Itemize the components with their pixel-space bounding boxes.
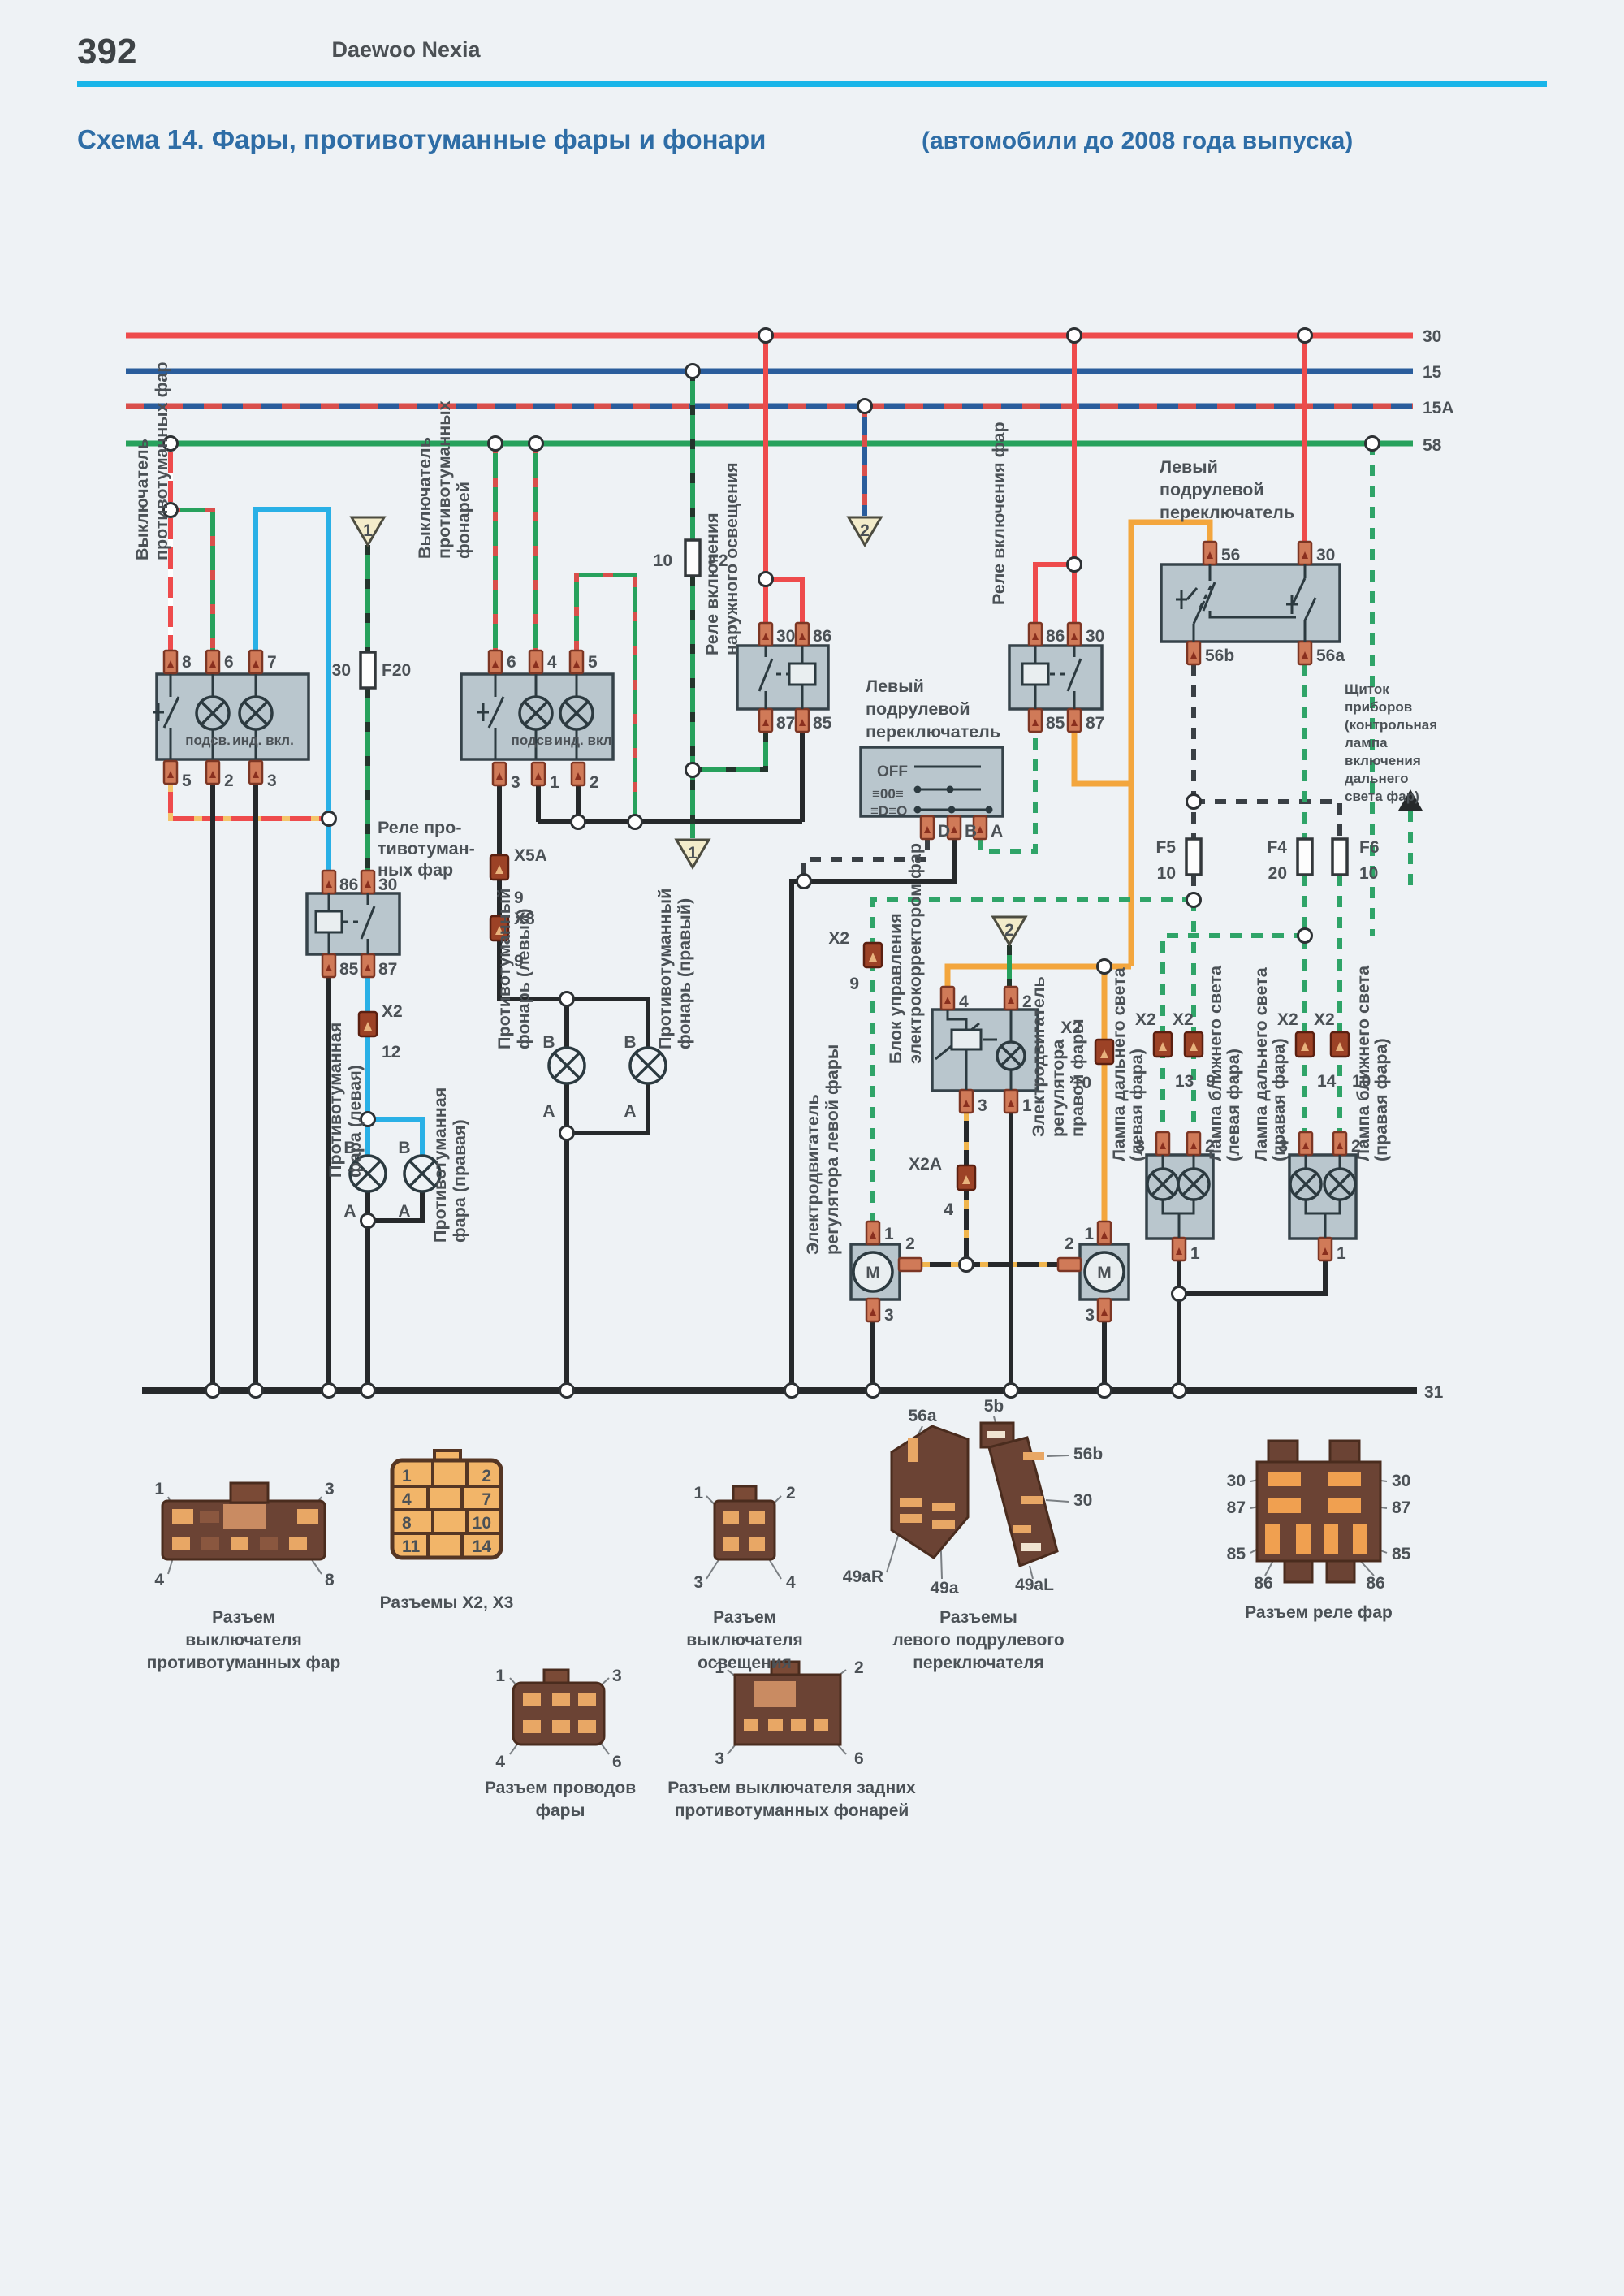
diagram-label: X2	[1135, 1010, 1156, 1029]
lamp-icon-x	[635, 1053, 660, 1078]
diagram-label: 6	[224, 653, 234, 672]
diagram-label: 87	[776, 714, 795, 733]
connector-headlamp-wires	[513, 1670, 604, 1745]
diagram-label: 1	[693, 1484, 703, 1503]
wire	[368, 1191, 422, 1221]
diagram-label: 2	[854, 1658, 864, 1677]
diagram-label: 30	[1392, 1472, 1410, 1490]
wire	[1179, 1260, 1325, 1294]
junction-dot	[249, 1384, 263, 1398]
ref-triangle-1: 1	[363, 521, 373, 540]
diagram-label: 4	[959, 992, 969, 1011]
diagram-label: 30	[1073, 1491, 1092, 1510]
right-leveling-motor-name: Электродвигатель	[1029, 976, 1048, 1137]
diagram-label: 49aL	[1015, 1576, 1054, 1594]
diagram-label: A	[343, 1202, 356, 1221]
diagram-label: 86	[813, 627, 831, 646]
high-beam-right-name: Лампа дальнего света	[1251, 966, 1271, 1161]
junction-dot	[1173, 1287, 1186, 1301]
connector-caption: Разъем	[212, 1608, 275, 1627]
diagram-label: 1	[884, 1225, 894, 1243]
fuse-f2-rating: 10	[654, 551, 672, 570]
diagram-label: 13	[1175, 1072, 1194, 1091]
bus-30-label: 30	[1423, 327, 1441, 346]
rear-fog-right-name: Противотуманный	[655, 889, 675, 1049]
diagram-label: B	[542, 1033, 555, 1052]
junction-dot	[686, 763, 700, 777]
connector-caption: фары	[536, 1801, 585, 1820]
diagram-label: 2	[1205, 1137, 1215, 1156]
dimmer-switch-name: Левый	[1160, 457, 1218, 477]
schema-title-note: (автомобили до 2008 года выпуска)	[922, 128, 1353, 154]
diagram-label: 3	[884, 1306, 894, 1325]
rear-fog-right-name: фонарь (правый)	[675, 898, 694, 1049]
diagram-label: 86	[339, 876, 358, 894]
diagram-label: 3	[978, 1096, 987, 1115]
wire-stripe	[693, 732, 766, 770]
diagram-label: 56	[1221, 546, 1240, 564]
junction-dot	[560, 992, 574, 1006]
diagram-label: 3	[1085, 1306, 1095, 1325]
cluster-note: света фар)	[1345, 789, 1419, 804]
wire	[171, 510, 213, 651]
diagram-label: 3	[1278, 1137, 1288, 1156]
junction-dot	[1068, 558, 1082, 572]
diagram-label: 49aR	[843, 1567, 883, 1586]
fuse-icon	[361, 652, 375, 688]
diagram-label: 1	[154, 1480, 164, 1498]
junction-dot	[797, 875, 811, 889]
front-fog-left-name: Противотуманная	[326, 1023, 345, 1178]
diagram-label: 3	[693, 1573, 703, 1592]
diagram-label: 86	[1254, 1574, 1272, 1593]
motor-m: M	[1097, 1264, 1112, 1282]
diagram-label: 2	[905, 1234, 915, 1253]
wire-stripe	[171, 784, 329, 819]
diagram-label: 56a	[1316, 646, 1345, 665]
rear-fog-switch-name: противотуманных	[434, 400, 454, 559]
wire	[693, 732, 766, 770]
diagram-label: 5b	[984, 1397, 1004, 1416]
cluster-note: включения	[1345, 753, 1421, 768]
ext-light-relay-name: Реле включения	[702, 512, 722, 655]
fuse-icon	[1186, 839, 1201, 875]
diagram-label: 5	[182, 772, 192, 790]
diagram-label: 3	[267, 772, 277, 790]
diagram-label: X2	[828, 929, 849, 948]
dimmer-switch-name: переключатель	[1160, 503, 1294, 522]
diagram-label: A	[542, 1102, 555, 1121]
junction-dot	[1068, 329, 1082, 343]
page-number: 392	[77, 32, 136, 71]
diagram-label: 8	[182, 653, 192, 672]
junction-dot	[489, 437, 503, 451]
diagram-label: 30	[1227, 1472, 1246, 1490]
diagram-label: ≡D≡O	[870, 803, 907, 819]
junction-dot	[1298, 329, 1312, 343]
connector-left-stalk	[892, 1423, 1057, 1566]
schema-title: Схема 14. Фары, противотуманные фары и ф…	[77, 124, 766, 154]
connector-fog-switch	[162, 1483, 325, 1559]
fuse-f5-rating: 10	[1157, 864, 1176, 883]
bus-15a-label: 15A	[1423, 399, 1454, 417]
brand-title: Daewoo Nexia	[331, 37, 481, 62]
junction-dot	[1098, 1384, 1112, 1398]
diagram-label: 1	[402, 1467, 412, 1485]
diagram-label: 86	[1366, 1574, 1384, 1593]
diagram-label: 3	[511, 773, 520, 792]
switch-position-dot	[948, 806, 956, 814]
leveling-unit-name: Блок управления	[886, 913, 905, 1064]
diagram-label: 2	[1065, 1234, 1074, 1253]
leader-line	[1046, 1500, 1069, 1502]
junction-dot	[1187, 893, 1201, 907]
cluster-note: лампа	[1345, 735, 1388, 750]
junction-dot	[322, 1384, 336, 1398]
diagram-label: 56b	[1073, 1445, 1103, 1464]
connector-caption: противотуманных фар	[147, 1654, 341, 1672]
connector-rear-fog-switch	[735, 1662, 840, 1745]
connector-caption: Разъемы X2, X3	[380, 1593, 514, 1612]
rear-fog-left-name: фонарь (левый)	[514, 909, 533, 1049]
connector-caption: Разъем выключателя задних	[667, 1779, 916, 1797]
connector-caption: освещения	[698, 1654, 792, 1672]
connector-pictograms	[162, 1423, 1380, 1745]
fuse-f20-name: F20	[382, 661, 411, 680]
diagram-label: 4	[547, 653, 557, 672]
diagram-label: 1	[715, 1658, 724, 1677]
connector-caption: противотуманных фонарей	[675, 1801, 909, 1820]
right-leveling-motor-name: правой фары	[1068, 1018, 1087, 1137]
junction-dot	[759, 329, 773, 343]
junction-dot	[361, 1214, 375, 1228]
junction-dot	[361, 1384, 375, 1398]
junction-dot	[1004, 1384, 1018, 1398]
wire	[171, 784, 329, 819]
diagram-label: B	[398, 1139, 410, 1157]
page-header: 392 Daewoo Nexia Схема 14. Фары, противо…	[77, 32, 1547, 154]
fuse-f4-name: F4	[1267, 838, 1287, 857]
bus-31-label: 31	[1424, 1383, 1444, 1402]
cluster-note: Щиток	[1345, 681, 1389, 697]
diagram-label: 4	[154, 1571, 164, 1589]
diagram-label: 30	[378, 876, 397, 894]
diagram-label: B	[624, 1033, 636, 1052]
relay-coil-icon	[789, 664, 815, 685]
wire	[1194, 802, 1340, 839]
wire	[766, 579, 802, 623]
junction-dot	[529, 437, 543, 451]
diagram-label: 49a	[930, 1579, 958, 1598]
diagram-label: 3	[325, 1480, 335, 1498]
fuse-icon	[1332, 839, 1347, 875]
diagram-label: 10	[473, 1514, 491, 1533]
diagram-label: 30	[776, 627, 795, 646]
ref-triangle-2: 2	[860, 521, 870, 540]
diagram-label: 2	[482, 1467, 491, 1485]
relay-coil-icon	[1022, 664, 1048, 685]
connector-caption: Разъем реле фар	[1245, 1603, 1393, 1622]
diagram-label: 87	[1227, 1498, 1246, 1517]
switch-position-dot	[914, 786, 922, 793]
diagram-label: подсв.	[185, 733, 231, 748]
diagram-label: 86	[1046, 627, 1065, 646]
fuse-f4-rating: 20	[1268, 864, 1287, 883]
connector-light-switch	[715, 1486, 775, 1559]
diagram-label: 85	[1227, 1545, 1246, 1563]
left-stalk-switch-name: подрулевой	[866, 699, 970, 719]
fog-switch-name: противотуманных фар	[152, 362, 171, 560]
junction-dot	[206, 1384, 220, 1398]
switch-position-dot	[947, 786, 954, 793]
rear-fog-left-name: Противотуманный	[495, 889, 514, 1049]
front-fog-right-name: фара (правая)	[450, 1119, 469, 1243]
junction-dot	[1298, 929, 1312, 943]
left-stalk-switch-name: Левый	[866, 677, 924, 696]
diagram-label: 4	[402, 1490, 412, 1509]
diagram-label: 12	[382, 1043, 400, 1062]
connector-caption: Разъемы	[939, 1608, 1017, 1627]
left-stalk-switch-name: переключатель	[866, 722, 1000, 742]
wire-stripe	[171, 510, 213, 651]
fuse-f6-name: F6	[1359, 838, 1380, 857]
diagram-label: ≡00≡	[872, 786, 904, 802]
diagram-label: X2	[1277, 1010, 1298, 1029]
junction-dot	[785, 1384, 799, 1398]
switch-position-dot	[914, 806, 922, 814]
diagram-label: 9	[849, 975, 859, 993]
diagram-label: 4	[786, 1573, 796, 1592]
rear-fog-switch-name: фонарей	[454, 482, 473, 559]
manual-page: 392 Daewoo Nexia Схема 14. Фары, противо…	[0, 0, 1624, 2296]
high-beam-left-name: Лампа дальнего света	[1109, 966, 1129, 1161]
low-beam-right-name: Лампа ближнего света	[1354, 965, 1373, 1161]
diagram-label: 14	[473, 1537, 492, 1556]
junction-dot	[560, 1126, 574, 1140]
diagram-label: 4	[944, 1200, 953, 1219]
junction-dot	[759, 573, 773, 586]
diagram-label: A	[398, 1202, 410, 1221]
diagram-label: 4	[495, 1753, 505, 1771]
potentiometer-icon	[952, 1030, 981, 1049]
fog-relay-name: Реле про-	[378, 818, 461, 837]
wiring-diagram: 392 Daewoo Nexia Схема 14. Фары, противо…	[0, 0, 1624, 2296]
pin-terminal	[1058, 1258, 1081, 1271]
diagram-label: B	[343, 1139, 356, 1157]
diagram-label: B	[965, 822, 977, 841]
junction-dot	[866, 1384, 880, 1398]
motor-m: M	[866, 1264, 880, 1282]
junction-dot	[628, 815, 642, 829]
diagram-label: 7	[482, 1490, 491, 1509]
diagram-label: 87	[1086, 714, 1104, 733]
fuse-f6-rating: 10	[1359, 864, 1378, 883]
junction-dot	[1173, 1384, 1186, 1398]
header-rule	[77, 81, 1547, 87]
diagram-label: 14	[1317, 1072, 1337, 1091]
front-fog-left-name: фара (левая)	[345, 1065, 365, 1178]
diagram-label: 85	[1392, 1545, 1411, 1563]
junction-dot	[858, 400, 872, 413]
diagram-label: инд. вкл.	[232, 733, 294, 748]
leveling-unit-name: электрокорректором фар	[905, 843, 925, 1064]
left-leveling-motor-name: Электродвигатель	[803, 1094, 823, 1255]
diagram-label: X2	[1173, 1010, 1194, 1029]
diagram-label: 87	[378, 960, 397, 979]
diagram-label: 1	[1084, 1225, 1094, 1243]
diagram-label: D	[938, 822, 950, 841]
cluster-note: приборов	[1345, 699, 1412, 715]
diagram-label: 1	[550, 773, 559, 792]
ref-triangle-1: 1	[688, 844, 698, 863]
fuse-icon	[1298, 839, 1312, 875]
diagram-label: 11	[402, 1537, 421, 1556]
diagram-label: 3	[612, 1667, 622, 1685]
left-leveling-motor-name: регулятора левой фары	[823, 1044, 842, 1255]
diagram-label: 2	[786, 1484, 796, 1503]
pin-terminal	[899, 1258, 922, 1271]
switch-position-dot	[986, 806, 993, 814]
diagram-label: 2	[1351, 1137, 1361, 1156]
connector-caption: выключателя	[185, 1631, 302, 1650]
junction-dot	[322, 812, 336, 826]
diagram-label: X2	[1314, 1010, 1335, 1029]
diagram-label: 30	[1086, 627, 1104, 646]
diagram-label: 56b	[1205, 646, 1234, 665]
headlight-relay-name: Реле включения фар	[989, 422, 1009, 605]
front-fog-right-name: Противотуманная	[430, 1087, 450, 1243]
diagram-label: 1	[1337, 1244, 1346, 1263]
ext-light-relay-name: наружного освещения	[722, 462, 741, 655]
connector-caption: выключателя	[686, 1631, 803, 1650]
diagram-label: 1	[495, 1667, 505, 1685]
connector-caption: левого подрулевого	[892, 1631, 1064, 1650]
diagram-label: 56a	[908, 1407, 936, 1425]
diagram-label: 85	[1046, 714, 1065, 733]
diagram-label: 85	[339, 960, 359, 979]
diagram-label: 85	[813, 714, 832, 733]
bus-58-label: 58	[1423, 436, 1442, 455]
diagram-label: 6	[612, 1753, 622, 1771]
diagram-label: X5A	[514, 846, 547, 865]
diagram-label: 1	[1190, 1244, 1200, 1263]
connector-caption: Разъем	[713, 1608, 776, 1627]
connector-caption: переключателя	[913, 1654, 1044, 1672]
junction-dot	[1366, 437, 1380, 451]
right-leveling-motor-name: регулятора	[1048, 1039, 1068, 1137]
diagram-label: 2	[224, 772, 234, 790]
rear-fog-switch-name: Выключатель	[415, 437, 434, 559]
lamp-icon-x	[554, 1053, 579, 1078]
junction-dot	[572, 815, 585, 829]
diagram-label: 87	[1392, 1498, 1410, 1517]
leader-line	[1047, 1455, 1069, 1456]
diagram-label: 3	[715, 1749, 724, 1768]
diagram-label: A	[991, 822, 1003, 841]
diagram-label: 8	[402, 1514, 412, 1533]
junction-dot	[1187, 795, 1201, 809]
wire	[1035, 564, 1074, 623]
diagram-label: A	[624, 1102, 636, 1121]
diagram-label: 3	[1135, 1137, 1145, 1156]
diagram-label: X2	[382, 1002, 403, 1021]
diagram-label: 7	[267, 653, 277, 672]
diagram-label: 6	[854, 1749, 864, 1768]
dimmer-switch-name: подрулевой	[1160, 480, 1264, 499]
diagram-label: 30	[1316, 546, 1335, 564]
ref-triangle-2: 2	[1004, 921, 1014, 940]
connector-caption: Разъем проводов	[485, 1779, 636, 1797]
fuse-icon	[685, 540, 700, 576]
connector-headlight-relay	[1257, 1441, 1380, 1582]
low-beam-left-name: (левая фара)	[1224, 1049, 1243, 1161]
fuse-f20-rating: 30	[332, 661, 351, 680]
cluster-note: дальнего	[1345, 771, 1408, 786]
diagram-label: 6	[507, 653, 516, 672]
junction-dot	[960, 1258, 974, 1272]
relay-coil-icon	[316, 911, 342, 932]
low-beam-right-name: (правая фара)	[1371, 1038, 1391, 1161]
fog-switch-name: Выключатель	[132, 439, 152, 560]
diagram-label: 5	[588, 653, 598, 672]
diagram-label: подсв	[512, 733, 553, 748]
fuse-f5-name: F5	[1155, 838, 1176, 857]
diagram-label: X2A	[909, 1155, 942, 1174]
low-beam-left-name: Лампа ближнего света	[1206, 965, 1225, 1161]
bus-15-label: 15	[1423, 363, 1442, 382]
cluster-note: (контрольная	[1345, 717, 1437, 733]
diagram-label: инд. вкл	[555, 733, 612, 748]
diagram-label: 8	[325, 1571, 335, 1589]
wire	[368, 1119, 422, 1156]
diagram-label: 2	[590, 773, 599, 792]
junction-dot	[560, 1384, 574, 1398]
diagram-label: 9	[514, 889, 524, 907]
diagram-label: OFF	[877, 763, 908, 780]
junction-dot	[686, 365, 700, 378]
fog-relay-name: тивотуман-	[378, 839, 475, 858]
